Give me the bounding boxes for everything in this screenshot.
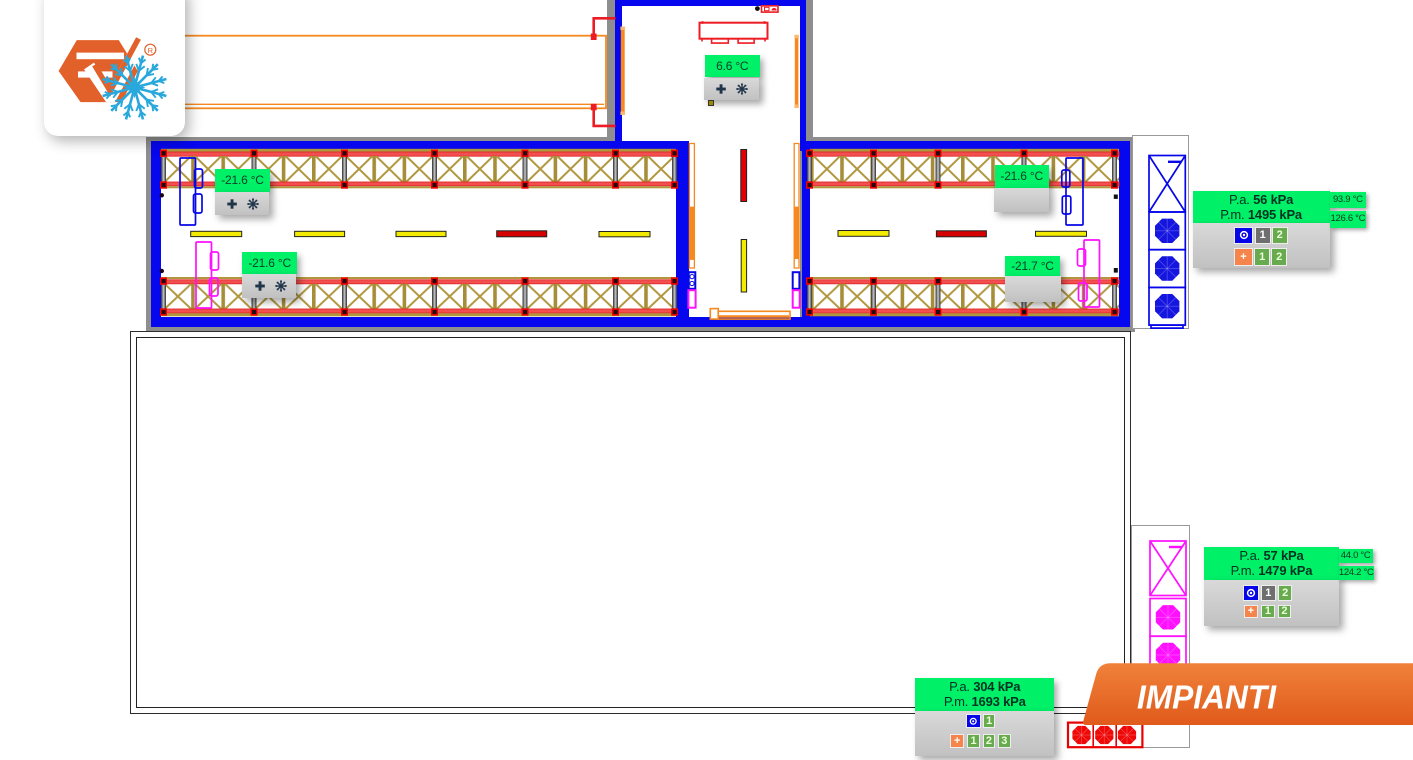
svg-text:IMPIANTI: IMPIANTI (1137, 679, 1277, 716)
svg-text:R: R (148, 46, 154, 55)
